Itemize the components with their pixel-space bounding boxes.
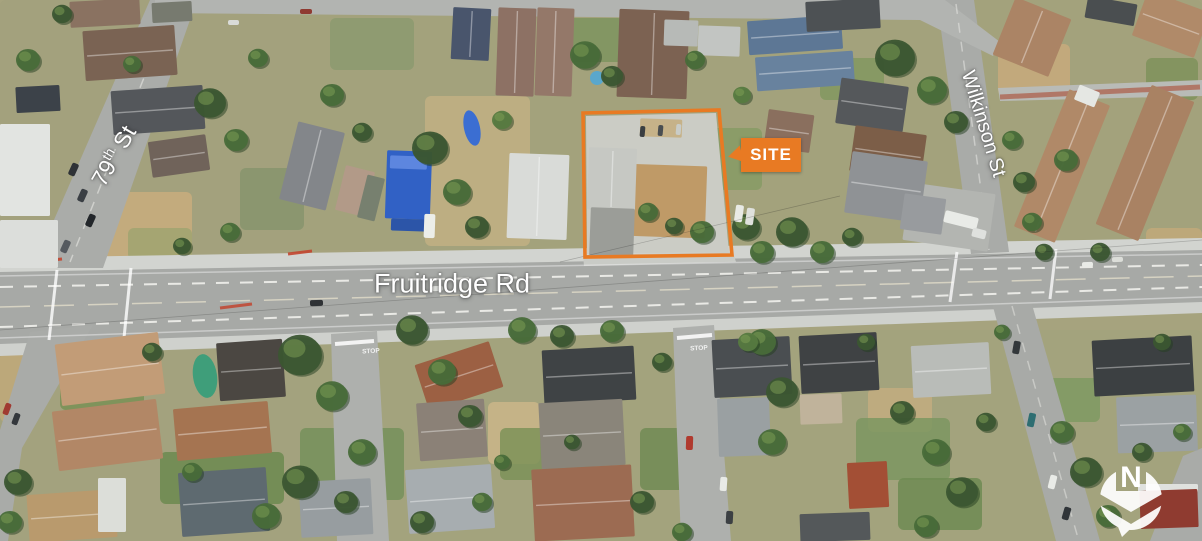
tree-highlight <box>413 513 425 523</box>
tree-highlight <box>475 495 485 503</box>
yard-patch <box>330 18 414 70</box>
tree-highlight <box>461 407 473 417</box>
tree-highlight <box>633 493 645 503</box>
building-roof <box>98 478 126 532</box>
building-roof <box>391 218 425 231</box>
tree-highlight <box>1135 445 1145 453</box>
tree-highlight <box>950 480 966 493</box>
aerial-photo-canvas: STOPSTOP <box>0 0 1202 541</box>
car <box>720 477 728 491</box>
building-roof <box>900 193 947 234</box>
tree-highlight <box>19 51 31 61</box>
car <box>228 20 239 25</box>
tree-highlight <box>1093 245 1103 253</box>
tree-highlight <box>996 326 1004 333</box>
tree-highlight <box>893 403 905 413</box>
tree-highlight <box>921 79 936 92</box>
car <box>1082 262 1093 267</box>
tree-highlight <box>323 86 335 96</box>
car <box>726 511 734 524</box>
building-roof <box>589 207 635 257</box>
tree-highlight <box>223 225 233 233</box>
tree-highlight <box>337 493 349 503</box>
tree-highlight <box>320 384 336 397</box>
tree-highlight <box>198 91 214 104</box>
tree-highlight <box>400 318 416 331</box>
aerial-site-map: STOPSTOP 79th St Fruitridge Rd Wilkinson… <box>0 0 1202 541</box>
tree-highlight <box>845 230 855 238</box>
car <box>686 436 693 450</box>
tree-highlight <box>1016 174 1027 183</box>
building-roof <box>799 393 842 424</box>
car <box>310 300 323 306</box>
north-arrow-letter: N <box>1120 461 1142 494</box>
tree-highlight <box>667 220 676 228</box>
tree-highlight <box>512 320 526 332</box>
tree-highlight <box>641 205 651 213</box>
tree-highlight <box>741 335 751 343</box>
tree-highlight <box>655 355 665 363</box>
building-roof <box>15 85 60 113</box>
tree-highlight <box>468 218 480 228</box>
tree-highlight <box>1074 460 1090 473</box>
tree-highlight <box>604 68 615 77</box>
tree-highlight <box>1053 423 1065 433</box>
building-roof <box>0 220 58 268</box>
tree-highlight <box>1005 133 1015 141</box>
car <box>1112 257 1123 262</box>
tree-highlight <box>185 465 195 473</box>
building-roof <box>0 124 50 216</box>
tree-highlight <box>859 336 868 344</box>
tree-highlight <box>8 472 22 484</box>
tree-highlight <box>675 525 685 533</box>
tree-highlight <box>227 131 239 141</box>
tree-highlight <box>175 240 184 248</box>
tree-highlight <box>256 506 270 518</box>
road-text-stop: STOP <box>690 345 709 353</box>
tree-highlight <box>417 135 435 150</box>
tree-highlight <box>553 327 565 337</box>
building-roof <box>664 19 699 46</box>
tree-highlight <box>496 456 504 463</box>
building-roof <box>847 461 889 509</box>
car <box>432 286 443 291</box>
tree-highlight <box>917 517 929 527</box>
site-callout: SITE <box>741 138 801 172</box>
building-roof <box>152 1 193 23</box>
tree-highlight <box>447 182 461 194</box>
car <box>300 9 312 14</box>
tree-highlight <box>1175 426 1184 434</box>
tree-highlight <box>432 362 446 374</box>
tree-highlight <box>1 513 13 523</box>
tree-highlight <box>251 51 261 59</box>
tree-highlight <box>947 113 959 123</box>
tree-highlight <box>762 432 776 444</box>
tree-highlight <box>770 380 786 393</box>
tree-highlight <box>688 53 698 61</box>
tree-highlight <box>753 243 765 253</box>
tree-highlight <box>566 436 574 443</box>
site-callout-pointer-icon <box>726 146 744 166</box>
tree-highlight <box>287 469 305 484</box>
tree-highlight <box>352 442 366 454</box>
site-callout-label: SITE <box>750 145 792 164</box>
tree-highlight <box>125 58 134 66</box>
tree-highlight <box>880 44 900 61</box>
tree-highlight <box>813 243 825 253</box>
car <box>658 125 664 136</box>
tree-highlight <box>355 125 365 133</box>
tree-highlight <box>979 415 989 423</box>
north-arrow-icon: N <box>1089 453 1173 541</box>
car <box>640 126 646 137</box>
building-roof <box>800 512 871 541</box>
road-text-stop: STOP <box>362 348 381 356</box>
car <box>676 124 682 135</box>
tree-highlight <box>1057 151 1069 161</box>
tree-highlight <box>603 322 615 332</box>
tree-highlight <box>735 89 744 97</box>
tree-highlight <box>1025 215 1035 223</box>
car <box>424 214 436 238</box>
tree-highlight <box>145 345 155 353</box>
tree-highlight <box>55 7 65 15</box>
tree-highlight <box>926 442 940 454</box>
tree-highlight <box>284 339 306 357</box>
building-roof <box>805 0 880 32</box>
building-roof <box>697 25 740 56</box>
tree-highlight <box>780 220 796 233</box>
tree-highlight <box>574 44 589 57</box>
tree-highlight <box>1155 336 1164 344</box>
tree-highlight <box>495 113 505 121</box>
building-roof <box>69 0 140 28</box>
